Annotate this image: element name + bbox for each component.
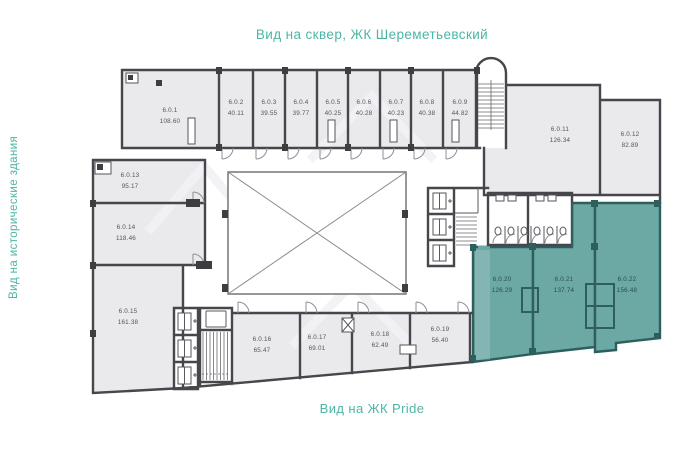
unit-area-label: 126.34 <box>550 137 571 144</box>
unit-area-label: 40.11 <box>228 110 245 117</box>
unit-id-label: 6.0.19 <box>431 326 450 333</box>
unit-area-label: 44.82 <box>452 110 469 117</box>
unit-id-label: 6.0.13 <box>121 172 140 179</box>
unit-shape-6-0-9[interactable] <box>443 70 477 148</box>
unit-id-label: 6.0.8 <box>419 99 434 106</box>
unit-id-label: 6.0.16 <box>253 336 272 343</box>
unit-id-label: 6.0.14 <box>117 224 136 231</box>
unit-id-label: 6.0.17 <box>308 334 327 341</box>
unit-shape-6-0-14[interactable] <box>93 203 205 265</box>
unit-shape-6-0-3[interactable] <box>253 70 285 148</box>
unit-id-label: 6.0.20 <box>493 276 512 283</box>
unit-id-label: 6.0.3 <box>261 99 276 106</box>
unit-id-label: 6.0.5 <box>325 99 340 106</box>
unit-id-label: 6.0.4 <box>293 99 308 106</box>
unit-area-label: 65.47 <box>254 347 271 354</box>
unit-id-label: 6.0.2 <box>228 99 243 106</box>
unit-shape-6-0-15[interactable] <box>93 265 183 393</box>
unit-area-label: 56.40 <box>432 337 449 344</box>
unit-area-label: 156.48 <box>617 287 638 294</box>
unit-area-label: 39.77 <box>293 110 310 117</box>
unit-shape-6-0-4[interactable] <box>285 70 317 148</box>
unit-id-label: 6.0.1 <box>162 107 177 114</box>
unit-area-label: 137.74 <box>554 287 575 294</box>
unit-area-label: 40.25 <box>325 110 342 117</box>
unit-id-label: 6.0.15 <box>119 308 138 315</box>
unit-area-label: 39.55 <box>261 110 278 117</box>
unit-area-label: 118.46 <box>116 235 136 242</box>
unit-shape-6-0-2[interactable] <box>219 70 253 148</box>
unit-area-label: 126.29 <box>492 287 513 294</box>
core-room-bg <box>454 188 488 245</box>
unit-area-label: 40.38 <box>419 110 436 117</box>
unit-area-label: 62.49 <box>372 342 389 349</box>
unit-id-label: 6.0.21 <box>555 276 574 283</box>
unit-area-label: 95.17 <box>122 183 139 190</box>
unit-id-label: 6.0.18 <box>371 331 390 338</box>
unit-area-label: 40.23 <box>388 110 405 117</box>
light-strip <box>475 250 490 360</box>
unit-id-label: 6.0.9 <box>452 99 467 106</box>
unit-id-label: 6.0.7 <box>388 99 403 106</box>
floor-plan-page: Вид на сквер, ЖК Шереметьевский Вид на и… <box>0 0 678 464</box>
unit-id-label: 6.0.11 <box>551 126 570 133</box>
unit-area-label: 82.89 <box>622 142 639 149</box>
unit-id-label: 6.0.6 <box>356 99 371 106</box>
unit-id-label: 6.0.22 <box>618 276 637 283</box>
unit-area-label: 69.01 <box>309 345 326 352</box>
floor-plan-svg: 6.0.1 108.60 6.0.2 40.11 6.0.3 39.55 6.0… <box>0 0 678 464</box>
unit-id-label: 6.0.12 <box>621 131 640 138</box>
unit-area-label: 40.28 <box>356 110 373 117</box>
unit-area-label: 108.60 <box>160 118 181 125</box>
unit-area-label: 161.38 <box>118 319 139 326</box>
